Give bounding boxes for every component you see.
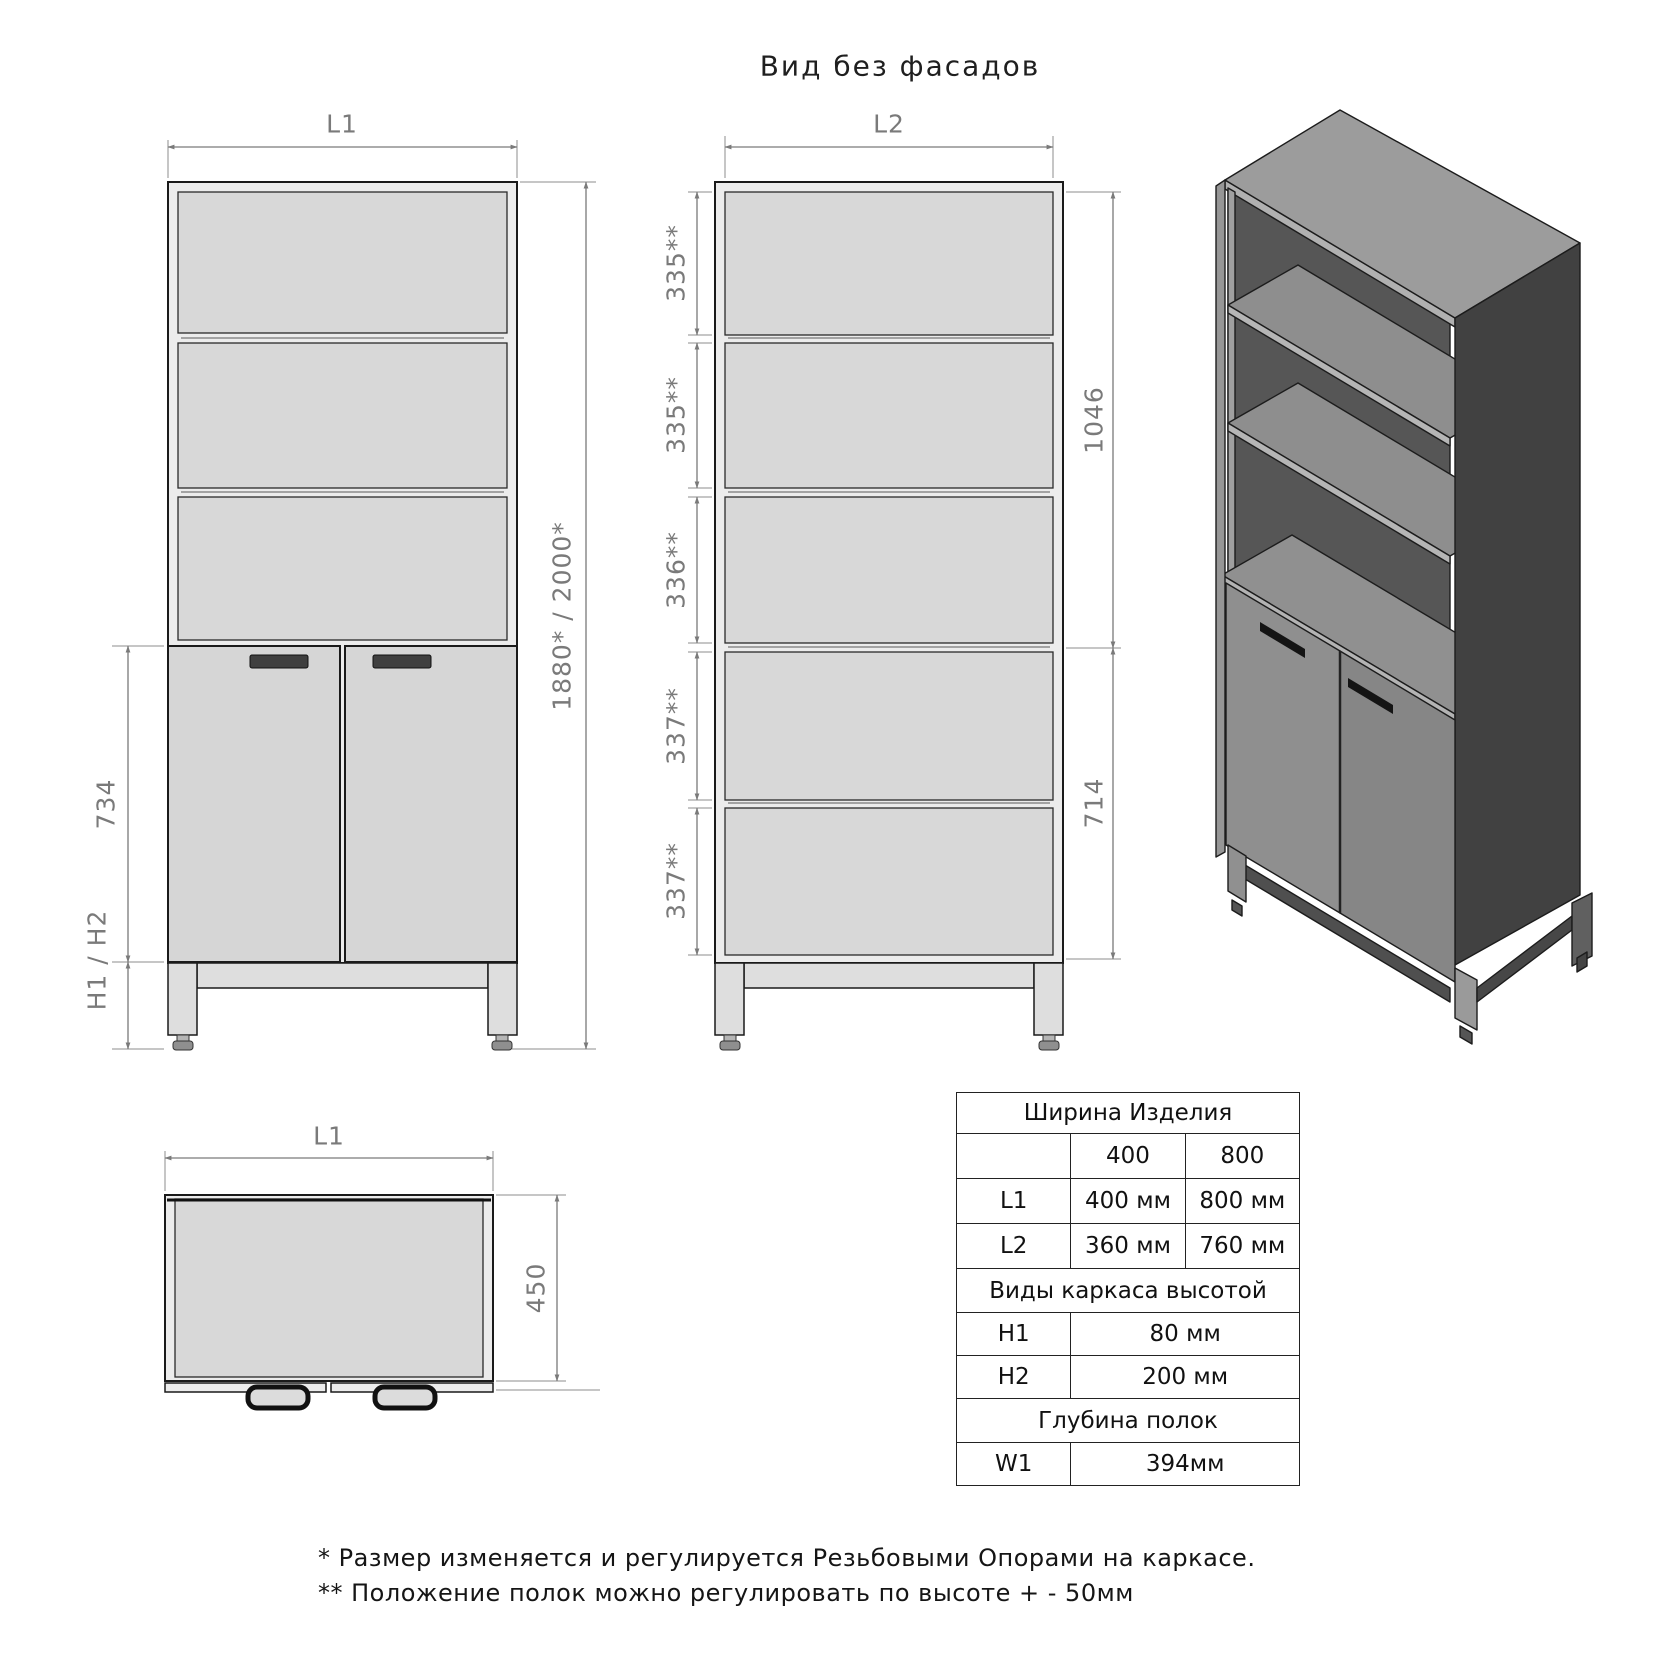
internal-left-leg bbox=[715, 963, 744, 1035]
table-variant-400: 400 bbox=[1071, 1134, 1185, 1179]
table-row-w1-value: 394мм bbox=[1071, 1443, 1300, 1486]
front-right-door-handle bbox=[373, 655, 431, 668]
dim-label-shelf-1: 335** bbox=[662, 224, 691, 302]
table-row-l2-v400: 360 мм bbox=[1071, 1224, 1185, 1269]
internal-right-leg bbox=[1034, 963, 1063, 1035]
iso-right-side bbox=[1455, 243, 1580, 965]
iso-view bbox=[1216, 110, 1592, 1044]
footnotes: * Размер изменяется и регулируется Резьб… bbox=[318, 1541, 1255, 1611]
table-row-l2-label: L2 bbox=[957, 1224, 1071, 1269]
table-row-w1-label: W1 bbox=[957, 1443, 1071, 1486]
dim-label-top-l1: L1 bbox=[313, 1122, 345, 1151]
dim-label-total-height: 1880* / 2000* bbox=[548, 521, 577, 711]
top-view-right-handle bbox=[375, 1387, 435, 1408]
table-row-h1-value: 80 мм bbox=[1071, 1313, 1300, 1356]
dim-label-front-l1: L1 bbox=[326, 110, 358, 139]
front-right-door bbox=[345, 646, 517, 962]
drawing-title: Вид без фасадов bbox=[760, 50, 1041, 83]
front-left-leg bbox=[168, 963, 197, 1035]
table-header-depth: Глубина полок bbox=[957, 1399, 1300, 1443]
iso-front-left-leg bbox=[1228, 845, 1246, 902]
front-right-leg bbox=[488, 963, 517, 1035]
iso-front-right-leg bbox=[1455, 968, 1477, 1030]
dim-label-door-height: 734 bbox=[92, 779, 121, 830]
table-row-l2-v800: 760 мм bbox=[1185, 1224, 1299, 1269]
table-variant-800: 800 bbox=[1185, 1134, 1299, 1179]
linework bbox=[0, 0, 1680, 1680]
iso-left-edge bbox=[1216, 180, 1225, 857]
front-view bbox=[168, 182, 517, 1050]
table-row-l1-v800: 800 мм bbox=[1185, 1179, 1299, 1224]
table-cell-empty bbox=[957, 1134, 1071, 1179]
front-left-door-handle bbox=[250, 655, 308, 668]
table-row-l1-v400: 400 мм bbox=[1071, 1179, 1185, 1224]
dim-label-frame-height: H1 / H2 bbox=[83, 910, 112, 1011]
spec-table: Ширина Изделия 400 800 L1 400 мм 800 мм … bbox=[956, 1092, 1300, 1486]
table-row-l1-label: L1 bbox=[957, 1179, 1071, 1224]
table-header-frame: Виды каркаса высотой bbox=[957, 1269, 1300, 1313]
dim-label-upper-height: 1046 bbox=[1080, 386, 1109, 454]
drawing-canvas: Вид без фасадов L1 1880* / 2000* 734 H1 … bbox=[0, 0, 1680, 1680]
dim-label-shelf-4: 337** bbox=[662, 687, 691, 765]
internal-view bbox=[715, 182, 1063, 1050]
table-row-h1-label: H1 bbox=[957, 1313, 1071, 1356]
footnote-size: * Размер изменяется и регулируется Резьб… bbox=[318, 1541, 1255, 1576]
front-left-door bbox=[168, 646, 340, 962]
dim-label-shelf-5: 337** bbox=[662, 842, 691, 920]
top-view-left-handle bbox=[248, 1387, 308, 1408]
table-row-h2-label: H2 bbox=[957, 1356, 1071, 1399]
dim-label-l2: L2 bbox=[873, 110, 905, 139]
dim-label-lower-height: 714 bbox=[1080, 778, 1109, 829]
footnote-shelves: ** Положение полок можно регулировать по… bbox=[318, 1576, 1255, 1611]
dim-label-shelf-3: 336** bbox=[662, 531, 691, 609]
table-header-width: Ширина Изделия bbox=[957, 1093, 1300, 1134]
table-row-h2-value: 200 мм bbox=[1071, 1356, 1300, 1399]
dim-label-shelf-2: 335** bbox=[662, 376, 691, 454]
dim-label-depth: 450 bbox=[522, 1263, 551, 1314]
